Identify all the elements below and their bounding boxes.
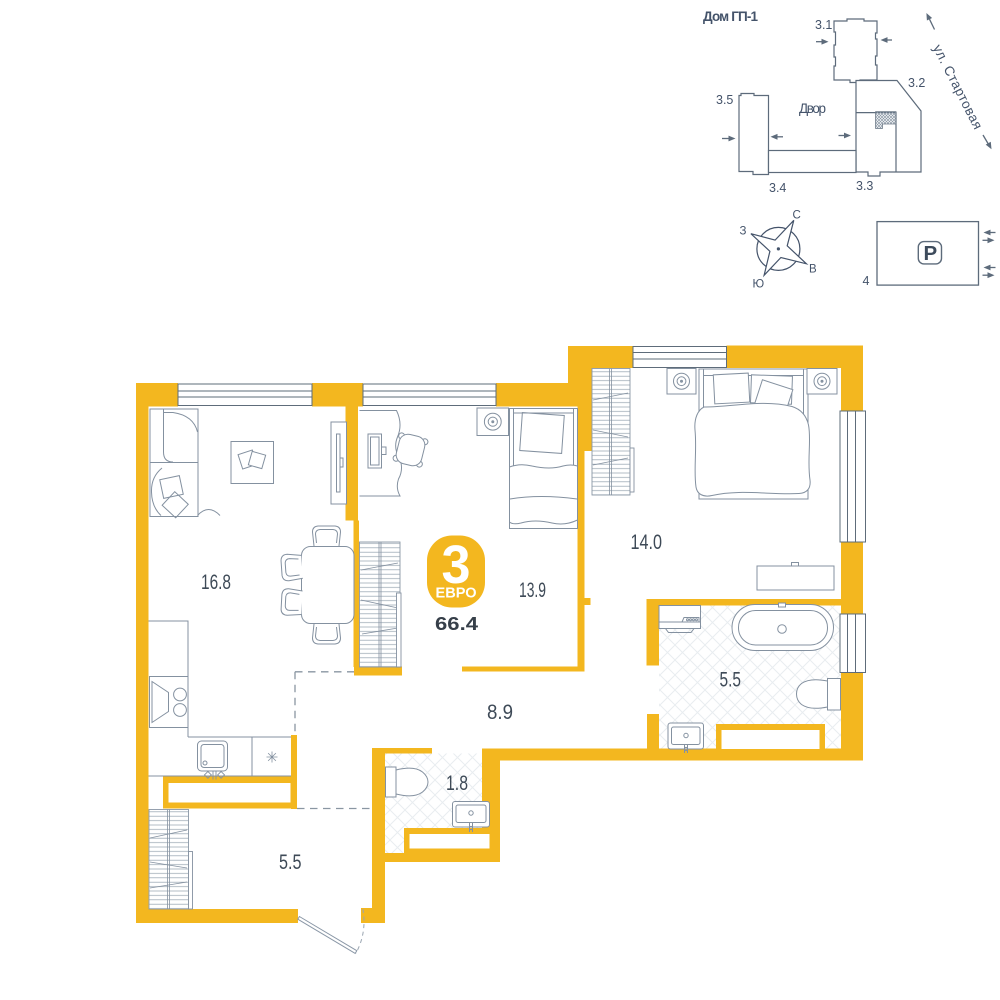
svg-text:Ю: Ю (753, 279, 765, 291)
svg-text:1.8: 1.8 (446, 771, 468, 795)
svg-text:66.4: 66.4 (435, 614, 478, 634)
svg-text:ЕВРО: ЕВРО (436, 586, 477, 602)
svg-text:3.1: 3.1 (815, 18, 832, 32)
svg-text:ул. Стартовая: ул. Стартовая (930, 42, 986, 132)
svg-text:3.5: 3.5 (716, 93, 733, 107)
svg-text:P: P (924, 242, 938, 265)
svg-text:13.9: 13.9 (519, 578, 546, 602)
svg-text:4: 4 (863, 274, 870, 288)
svg-text:3.4: 3.4 (769, 181, 786, 195)
svg-text:3.2: 3.2 (908, 76, 925, 90)
svg-text:В: В (809, 264, 817, 276)
svg-text:Дом ГП-1: Дом ГП-1 (703, 9, 758, 24)
svg-text:З: З (740, 226, 747, 238)
svg-text:5.5: 5.5 (279, 850, 302, 874)
svg-text:Двор: Двор (799, 101, 826, 116)
svg-text:16.8: 16.8 (201, 570, 231, 594)
svg-text:3.3: 3.3 (856, 179, 873, 193)
svg-text:С: С (793, 210, 801, 222)
svg-text:14.0: 14.0 (631, 530, 663, 554)
svg-text:5.5: 5.5 (720, 668, 742, 692)
svg-text:8.9: 8.9 (487, 700, 513, 724)
